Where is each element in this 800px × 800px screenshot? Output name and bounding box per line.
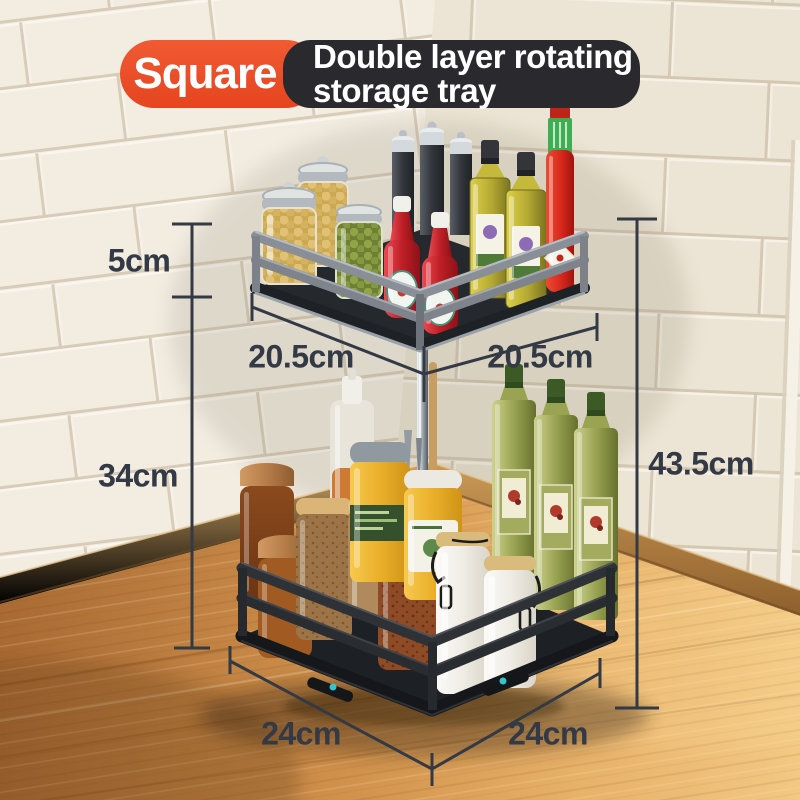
dimension-label-top-width-left: 20.5cm [248, 339, 354, 376]
dimension-label-lower-height: 34cm [98, 458, 178, 495]
dimension-label-base-width-left: 24cm [261, 716, 341, 753]
dimension-label-base-width-right: 24cm [508, 716, 588, 753]
product-title-line1: Double layer rotating [313, 40, 640, 74]
product-title-badge: Double layer rotating storage tray [283, 40, 640, 108]
dimension-label-tier-height: 5cm [108, 243, 171, 280]
product-title-line2: storage tray [313, 74, 640, 108]
olive-jar [336, 205, 382, 298]
dimension-label-top-width-right: 20.5cm [487, 339, 593, 376]
dimension-label-total-height: 43.5cm [648, 446, 754, 483]
shape-badge-label: Square [133, 49, 276, 99]
product-image: Square Double layer rotating storage tra… [0, 0, 800, 800]
scene-illustration [0, 0, 800, 800]
